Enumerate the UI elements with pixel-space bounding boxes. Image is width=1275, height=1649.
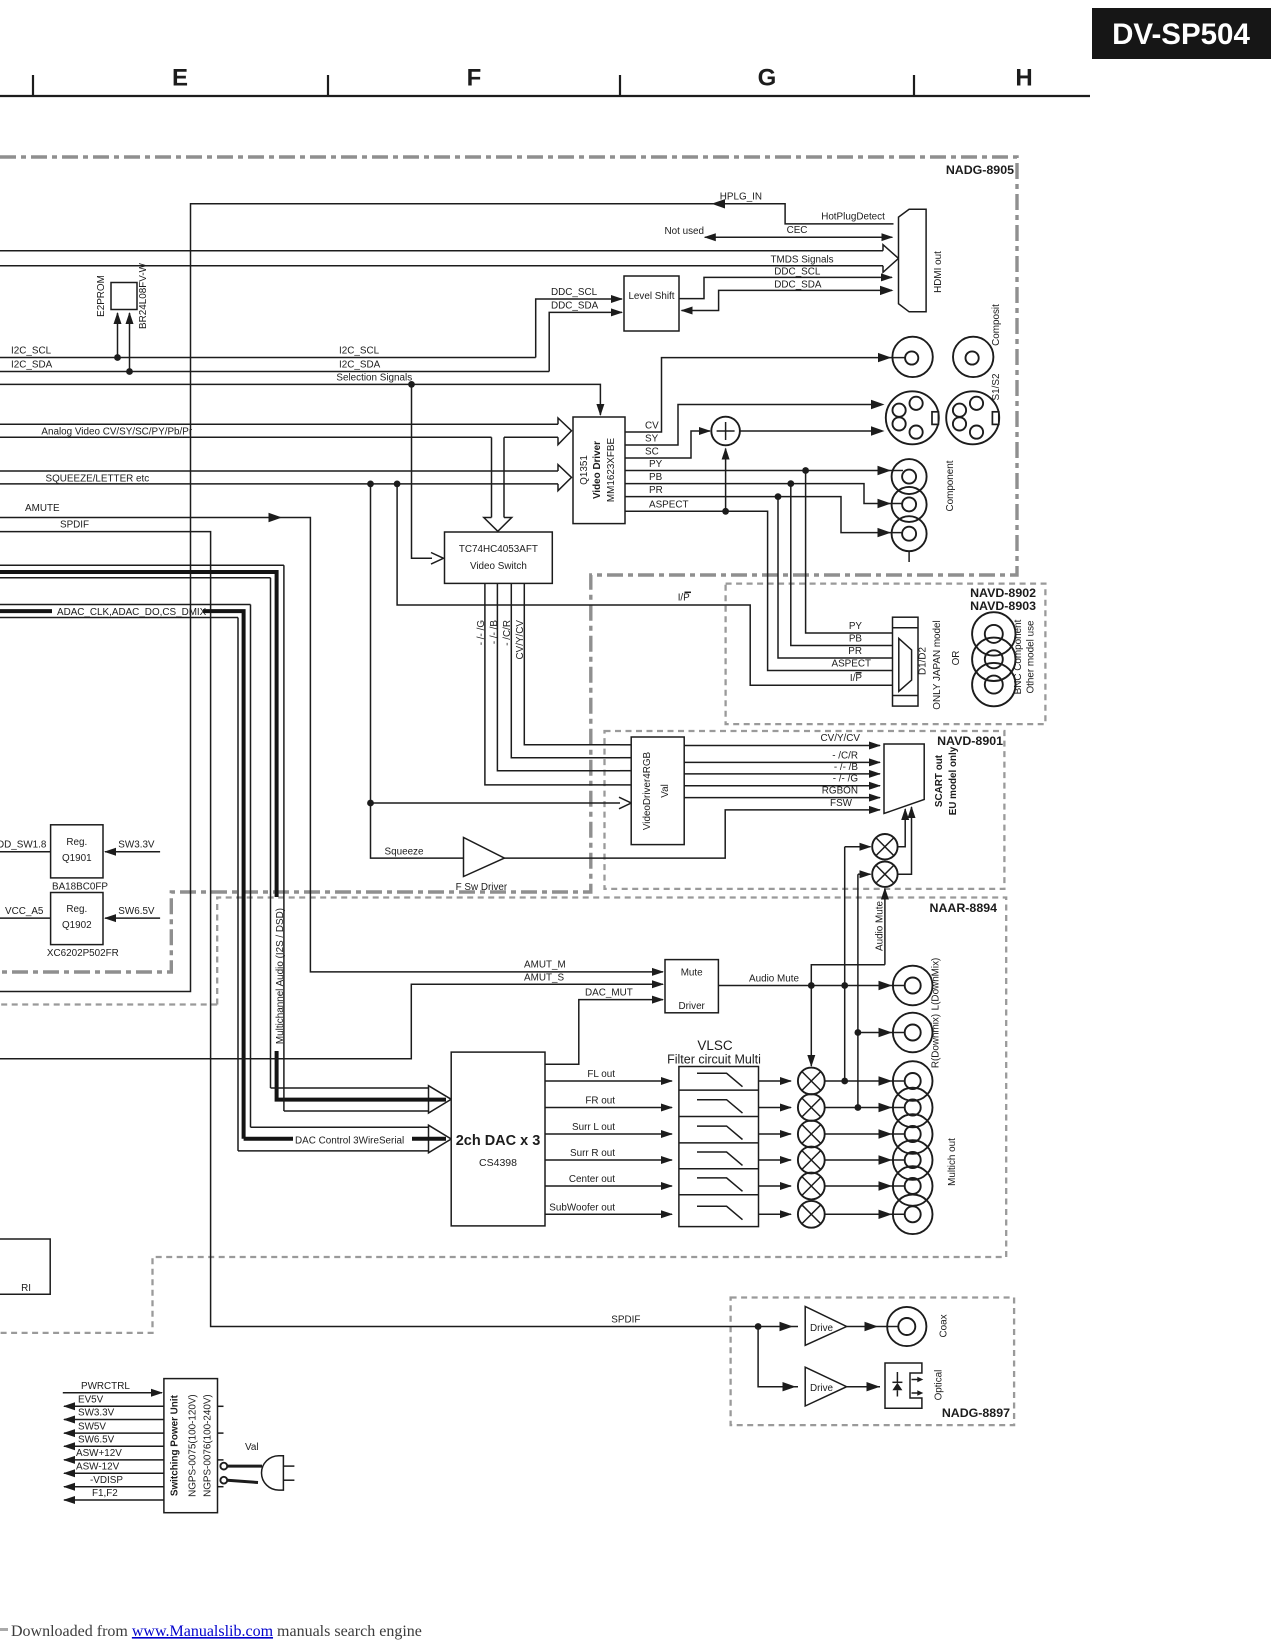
- svg-text:G: G: [758, 65, 777, 92]
- svg-text:- /C/R: - /C/R: [502, 620, 513, 646]
- svg-text:Reg.: Reg.: [66, 837, 87, 848]
- svg-text:Squeeze: Squeeze: [385, 847, 424, 858]
- svg-text:Val: Val: [660, 784, 671, 798]
- svg-text:DDC_SDA: DDC_SDA: [551, 300, 599, 311]
- svg-text:Audio Mute: Audio Mute: [875, 901, 886, 951]
- svg-text:HotPlugDetect: HotPlugDetect: [821, 212, 885, 223]
- svg-text:DDC_SCL: DDC_SCL: [774, 267, 821, 278]
- svg-text:BA18BC0FP: BA18BC0FP: [52, 882, 108, 893]
- svg-text:SY: SY: [645, 434, 659, 445]
- svg-text:I/P: I/P: [850, 673, 862, 684]
- svg-text:PB: PB: [849, 634, 863, 645]
- svg-text:Selection Signals: Selection Signals: [336, 373, 412, 384]
- svg-text:Component: Component: [945, 460, 956, 511]
- svg-text:DAC Control 3WireSerial: DAC Control 3WireSerial: [295, 1136, 404, 1147]
- svg-text:DDC_SDA: DDC_SDA: [774, 280, 822, 291]
- svg-text:SW6.5V: SW6.5V: [78, 1435, 115, 1446]
- svg-text:- /- /B: - /- /B: [834, 762, 859, 773]
- svg-text:ADAC_CLK,ADAC_DO,CS_DMIX: ADAC_CLK,ADAC_DO,CS_DMIX: [57, 607, 207, 618]
- svg-text:HPLG_IN: HPLG_IN: [720, 192, 762, 203]
- svg-text:MM1623XFBE: MM1623XFBE: [606, 437, 617, 502]
- svg-text:AMUT_M: AMUT_M: [524, 960, 566, 971]
- svg-text:Switching Power Unit: Switching Power Unit: [170, 1394, 181, 1496]
- svg-text:Surr L out: Surr L out: [572, 1122, 615, 1133]
- svg-text:Optical: Optical: [934, 1370, 945, 1401]
- svg-text:NAAR-8894: NAAR-8894: [930, 901, 998, 915]
- svg-text:I2C_SCL: I2C_SCL: [11, 346, 52, 357]
- svg-text:DD_SW1.8: DD_SW1.8: [0, 840, 47, 851]
- svg-text:FL out: FL out: [587, 1069, 615, 1080]
- svg-text:Surr R out: Surr R out: [570, 1148, 615, 1159]
- svg-text:F1,F2: F1,F2: [92, 1488, 118, 1499]
- svg-text:I/P: I/P: [678, 593, 690, 604]
- svg-text:F Sw Driver: F Sw Driver: [456, 882, 508, 893]
- svg-text:Reg.: Reg.: [66, 904, 87, 915]
- svg-text:Level Shift: Level Shift: [628, 291, 674, 302]
- svg-text:E2PROM: E2PROM: [96, 275, 107, 317]
- svg-text:ASPECT: ASPECT: [649, 500, 689, 511]
- svg-text:TMDS Signals: TMDS Signals: [771, 255, 834, 266]
- svg-text:CV: CV: [645, 421, 659, 432]
- svg-text:NADG-8905: NADG-8905: [946, 163, 1014, 177]
- svg-text:ASW-12V: ASW-12V: [76, 1461, 120, 1472]
- svg-text:TC74HC4053AFT: TC74HC4053AFT: [459, 544, 538, 555]
- svg-text:- /- /G: - /- /G: [476, 620, 487, 645]
- svg-text:SPDIF: SPDIF: [60, 520, 89, 531]
- svg-text:- /- /B: - /- /B: [489, 620, 500, 645]
- svg-text:AMUT_S: AMUT_S: [524, 972, 564, 983]
- svg-text:Other model use: Other model use: [1025, 620, 1036, 694]
- svg-text:CV/Y/CV: CV/Y/CV: [820, 733, 860, 744]
- svg-text:Not used: Not used: [664, 226, 704, 237]
- svg-text:Filter circuit Multi: Filter circuit Multi: [667, 1053, 761, 1067]
- svg-text:RGBON: RGBON: [822, 786, 858, 797]
- svg-text:- /- /G: - /- /G: [833, 774, 858, 785]
- svg-text:Drive: Drive: [810, 1323, 834, 1334]
- svg-text:ASPECT: ASPECT: [831, 659, 871, 670]
- svg-text:I2C_SDA: I2C_SDA: [339, 360, 381, 371]
- svg-text:Center out: Center out: [569, 1174, 615, 1185]
- svg-text:AMUTE: AMUTE: [25, 503, 60, 514]
- svg-text:NAVD-8902: NAVD-8902: [970, 586, 1036, 600]
- svg-text:Composit: Composit: [991, 304, 1002, 346]
- svg-text:DDC_SCL: DDC_SCL: [551, 287, 598, 298]
- svg-text:- /C/R: - /C/R: [832, 750, 858, 761]
- svg-text:Video Switch: Video Switch: [470, 561, 527, 572]
- svg-text:NAVD-8901: NAVD-8901: [937, 734, 1003, 748]
- svg-text:VLSC: VLSC: [697, 1038, 733, 1053]
- svg-text:SW6.5V: SW6.5V: [118, 906, 155, 917]
- svg-text:BR24L08FV-W: BR24L08FV-W: [138, 262, 149, 329]
- svg-text:PR: PR: [848, 646, 862, 657]
- svg-text:NADG-8897: NADG-8897: [942, 1406, 1010, 1420]
- svg-text:I2C_SCL: I2C_SCL: [339, 346, 380, 357]
- svg-text:Q1901: Q1901: [62, 853, 92, 864]
- svg-text:-VDISP: -VDISP: [90, 1475, 123, 1486]
- svg-text:CS4398: CS4398: [479, 1157, 517, 1169]
- svg-text:CEC: CEC: [787, 225, 808, 236]
- svg-text:SW3.3V: SW3.3V: [118, 840, 155, 851]
- svg-text:Driver: Driver: [679, 1001, 706, 1012]
- svg-text:ASW+12V: ASW+12V: [76, 1448, 122, 1459]
- svg-text:FSW: FSW: [830, 798, 853, 809]
- svg-text:DV-SP504: DV-SP504: [1112, 18, 1250, 51]
- svg-text:RI: RI: [21, 1283, 31, 1294]
- svg-text:I2C_SDA: I2C_SDA: [11, 360, 53, 371]
- svg-text:SW5V: SW5V: [78, 1421, 106, 1432]
- svg-text:Audio Mute: Audio Mute: [749, 974, 799, 985]
- svg-text:EV5V: EV5V: [78, 1395, 104, 1406]
- svg-text:Multichannel Audio (I2S / DSD): Multichannel Audio (I2S / DSD): [275, 908, 286, 1044]
- svg-text:FR out: FR out: [585, 1096, 615, 1107]
- svg-text:PB: PB: [649, 472, 663, 483]
- svg-text:F: F: [467, 65, 482, 92]
- svg-text:R(Downmix): R(Downmix): [931, 1014, 942, 1068]
- svg-text:OR: OR: [951, 651, 962, 666]
- svg-text:PY: PY: [649, 459, 663, 470]
- svg-text:PY: PY: [849, 621, 863, 632]
- svg-text:EU model only: EU model only: [948, 746, 959, 815]
- svg-text:H: H: [1015, 65, 1032, 92]
- svg-text:XC6202P502FR: XC6202P502FR: [47, 948, 119, 959]
- svg-text:NAVD-8903: NAVD-8903: [970, 599, 1036, 613]
- svg-text:Multich out: Multich out: [947, 1138, 958, 1186]
- svg-text:Q1351: Q1351: [579, 455, 590, 485]
- svg-text:S1/S2: S1/S2: [991, 374, 1002, 401]
- svg-text:PR: PR: [649, 485, 663, 496]
- svg-text:ONLY JAPAN model: ONLY JAPAN model: [932, 620, 943, 709]
- svg-text:VCC_A5: VCC_A5: [5, 906, 44, 917]
- svg-text:HDMI out: HDMI out: [933, 251, 944, 293]
- svg-text:Drive: Drive: [810, 1383, 834, 1394]
- svg-text:SCART out: SCART out: [934, 754, 945, 807]
- svg-text:Analog Video CV/SY/SC/PY/Pb/Pr: Analog Video CV/SY/SC/PY/Pb/Pr: [41, 426, 192, 437]
- svg-text:PWRCTRL: PWRCTRL: [81, 1381, 130, 1392]
- svg-text:Downloaded from www.Manualslib: Downloaded from www.Manualslib.com manua…: [11, 1623, 422, 1640]
- svg-text:SPDIF: SPDIF: [611, 1315, 640, 1326]
- svg-text:Q1902: Q1902: [62, 920, 92, 931]
- svg-text:SQUEEZE/LETTER etc: SQUEEZE/LETTER etc: [46, 473, 150, 484]
- svg-text:SW3.3V: SW3.3V: [78, 1408, 115, 1419]
- svg-text:VideoDriver4RGB: VideoDriver4RGB: [642, 751, 653, 830]
- svg-text:SubWoofer out: SubWoofer out: [549, 1202, 615, 1213]
- svg-text:Val: Val: [245, 1442, 259, 1453]
- svg-text:L(DownMix): L(DownMix): [931, 958, 942, 1011]
- svg-text:BNC Component: BNC Component: [1013, 619, 1024, 694]
- svg-text:SC: SC: [645, 447, 659, 458]
- svg-text:CV/Y/CV: CV/Y/CV: [515, 620, 526, 660]
- svg-text:Mute: Mute: [681, 968, 703, 979]
- svg-text:NGPS-0076(100-240V): NGPS-0076(100-240V): [203, 1394, 214, 1497]
- svg-text:Video Driver: Video Driver: [592, 441, 603, 499]
- svg-text:Coax: Coax: [939, 1314, 950, 1337]
- svg-text:DAC_MUT: DAC_MUT: [585, 988, 633, 999]
- svg-text:E: E: [172, 65, 188, 92]
- svg-text:NGPS-0075(100-120V): NGPS-0075(100-120V): [188, 1394, 199, 1497]
- svg-text:D1/D2: D1/D2: [918, 647, 929, 675]
- svg-text:2ch DAC x 3: 2ch DAC x 3: [456, 1133, 541, 1149]
